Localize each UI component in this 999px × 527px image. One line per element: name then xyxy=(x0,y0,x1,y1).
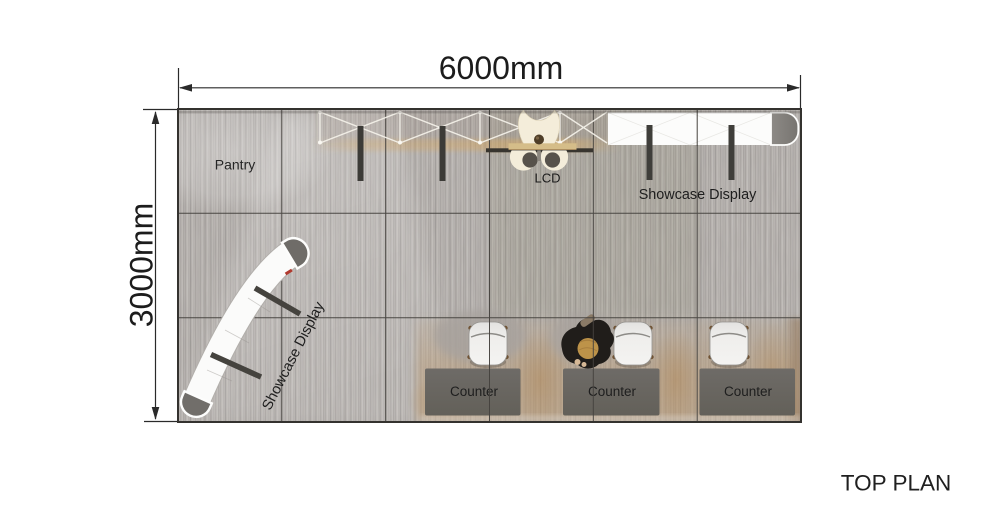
svg-text:TOP PLAN: TOP PLAN xyxy=(841,471,951,496)
svg-text:Pantry: Pantry xyxy=(215,157,255,173)
svg-text:6000mm: 6000mm xyxy=(439,50,564,86)
svg-text:Counter: Counter xyxy=(724,384,773,399)
svg-text:3000mm: 3000mm xyxy=(124,203,160,328)
svg-text:Counter: Counter xyxy=(588,384,637,399)
svg-text:Counter: Counter xyxy=(450,384,499,399)
svg-text:Showcase Display: Showcase Display xyxy=(639,187,757,203)
svg-text:LCD: LCD xyxy=(534,171,560,186)
